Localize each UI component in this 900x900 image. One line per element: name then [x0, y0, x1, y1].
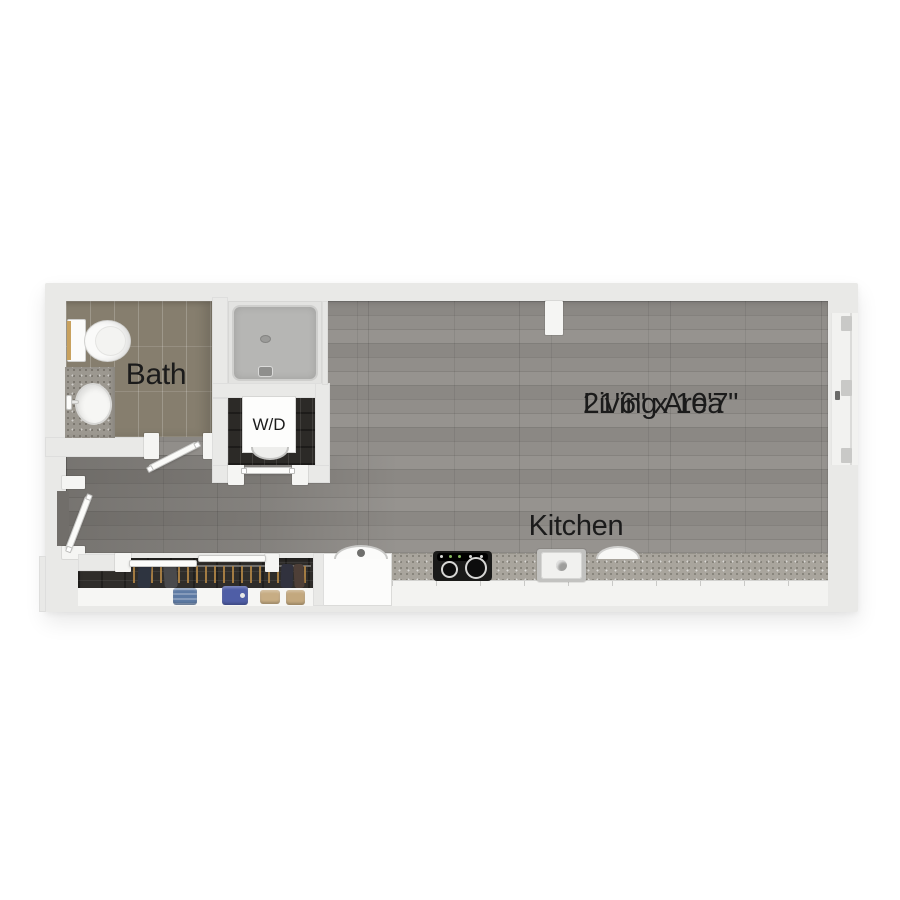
hanging-garment — [163, 564, 178, 589]
shower-glass-wall — [322, 301, 328, 385]
kitchen-room-label: Kitchen — [529, 510, 624, 543]
folded-clothes-tan — [286, 590, 305, 605]
kitchen-faucet-icon — [556, 560, 567, 571]
kitchen-island — [322, 553, 392, 606]
closet-sliding-door-left — [129, 560, 197, 567]
window-handle-icon — [835, 391, 840, 400]
shower-valve-icon — [259, 367, 272, 376]
kitchen-cabinets — [392, 580, 828, 606]
folded-clothes-tan — [260, 590, 280, 604]
entry-threshold — [57, 491, 69, 546]
button-icon — [240, 593, 245, 598]
exterior-wall-bump — [39, 556, 46, 612]
bath-room-label: Bath — [126, 358, 187, 392]
laundry-door-jamb-left — [228, 463, 244, 485]
stove-burner-icon — [441, 561, 458, 578]
door-knob-icon — [241, 468, 247, 474]
closet-jamb-right — [265, 554, 279, 572]
floor-plan-canvas: W/D — [0, 0, 900, 900]
shower-drain-icon — [260, 335, 271, 343]
hanging-garment — [137, 564, 151, 589]
bathroom-faucet-spout-icon — [71, 400, 79, 404]
living-area-dimensions: 21'6" x 10'7" — [583, 389, 738, 420]
shower-pan — [232, 305, 318, 381]
closet-sliding-door-right — [198, 555, 266, 562]
island-faucet-icon — [357, 549, 365, 557]
hanging-garment — [293, 564, 304, 588]
toilet-seat — [95, 326, 126, 356]
apartment-floor-plan: W/D — [45, 283, 858, 612]
washer-dryer-label: W/D — [252, 415, 285, 435]
closet-wall-right — [313, 553, 324, 606]
folded-jeans — [173, 588, 197, 605]
wall-laundry-bottom-right — [306, 465, 330, 483]
stove-knob-icon — [458, 555, 461, 558]
stove-knob-icon — [440, 555, 443, 558]
door-knob-icon — [289, 468, 295, 474]
wall-bath-bottom — [45, 437, 158, 457]
stove-burner-icon — [465, 557, 487, 579]
closet-front-wall-left — [78, 554, 118, 571]
window-mullion-icon — [841, 448, 852, 463]
toilet-tank-accent — [67, 321, 71, 360]
entry-door-jamb-top — [62, 476, 85, 489]
washer-dryer-unit: W/D — [242, 396, 296, 453]
bath-door-jamb-left — [144, 433, 159, 459]
wall-stub-top — [545, 301, 563, 335]
window-mullion-icon — [841, 380, 852, 396]
laundry-door-jamb-right — [292, 463, 308, 485]
window-mullion-icon — [841, 316, 852, 331]
stove-knob-icon — [449, 555, 452, 558]
laundry-door — [244, 467, 292, 474]
hanging-garment — [281, 564, 294, 588]
